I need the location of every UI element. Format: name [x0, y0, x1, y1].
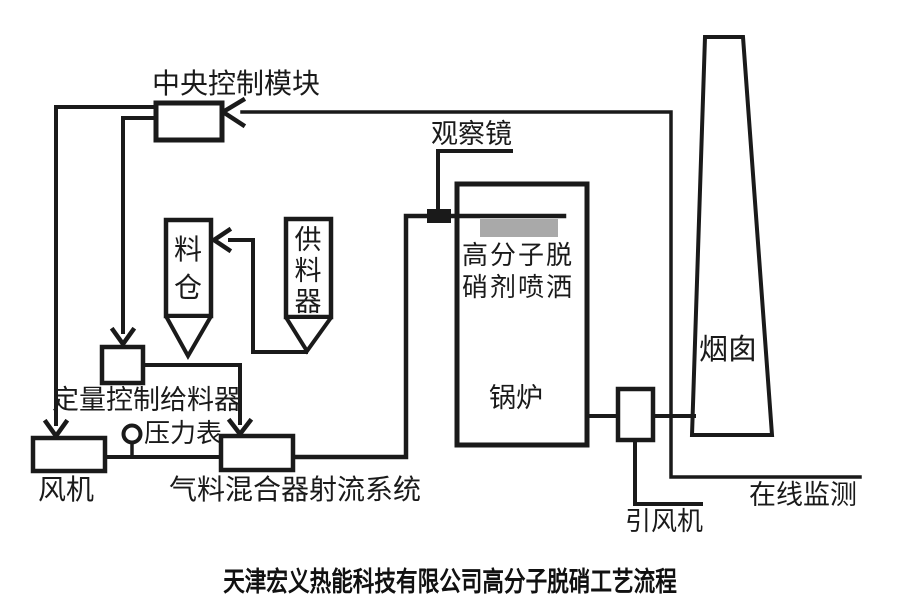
diagram-caption: 天津宏义热能科技有限公司高分子脱硝工艺流程 [90, 560, 810, 599]
material-bin-funnel [167, 318, 210, 356]
boiler-wall-connector [427, 209, 451, 223]
pressure-gauge-dial [124, 426, 141, 443]
feeder-funnel [287, 319, 330, 351]
chimney-shape [692, 37, 772, 435]
central-control-box [156, 103, 222, 140]
central-control-label: 中央控制模块 [152, 69, 320, 100]
control-to-quant-feeder-line [123, 118, 158, 332]
jet-mixer-label: 气料混合器射流系统 [169, 475, 421, 506]
jet-mixer-box [221, 436, 293, 470]
boiler-label: 锅炉 [489, 384, 543, 414]
spray-agent-label-line1: 高分子脱 [462, 242, 574, 271]
spray-agent-label-line2: 硝剂喷洒 [462, 274, 574, 303]
induced-fan-label: 引风机 [625, 508, 703, 537]
fan-box [33, 438, 105, 471]
quantitative-feeder-label: 定量控制给料器 [52, 386, 241, 416]
arrow-into-central-control [223, 100, 243, 125]
induced-fan-box [618, 389, 653, 440]
chimney-label: 烟囱 [699, 334, 757, 366]
inducedfan-label-leader [635, 440, 701, 504]
material-bin-label: 料仓 [173, 231, 203, 307]
fan-label: 风机 [38, 475, 94, 506]
arrow-into-bin [214, 230, 229, 250]
pressure-gauge-label: 压力表 [144, 420, 222, 449]
observation-mirror-label: 观察镜 [431, 120, 512, 150]
spray-zone [480, 219, 558, 237]
diagram-canvas [0, 0, 900, 610]
quantitative-feeder-box [102, 347, 143, 383]
process-flow-diagram: 中央控制模块 观察镜 料仓 供料器 定量控制给料器 压力表 风机 气料混合器射流… [0, 0, 900, 610]
feeder-label: 供料器 [293, 225, 323, 318]
online-monitoring-label: 在线监测 [749, 481, 857, 511]
